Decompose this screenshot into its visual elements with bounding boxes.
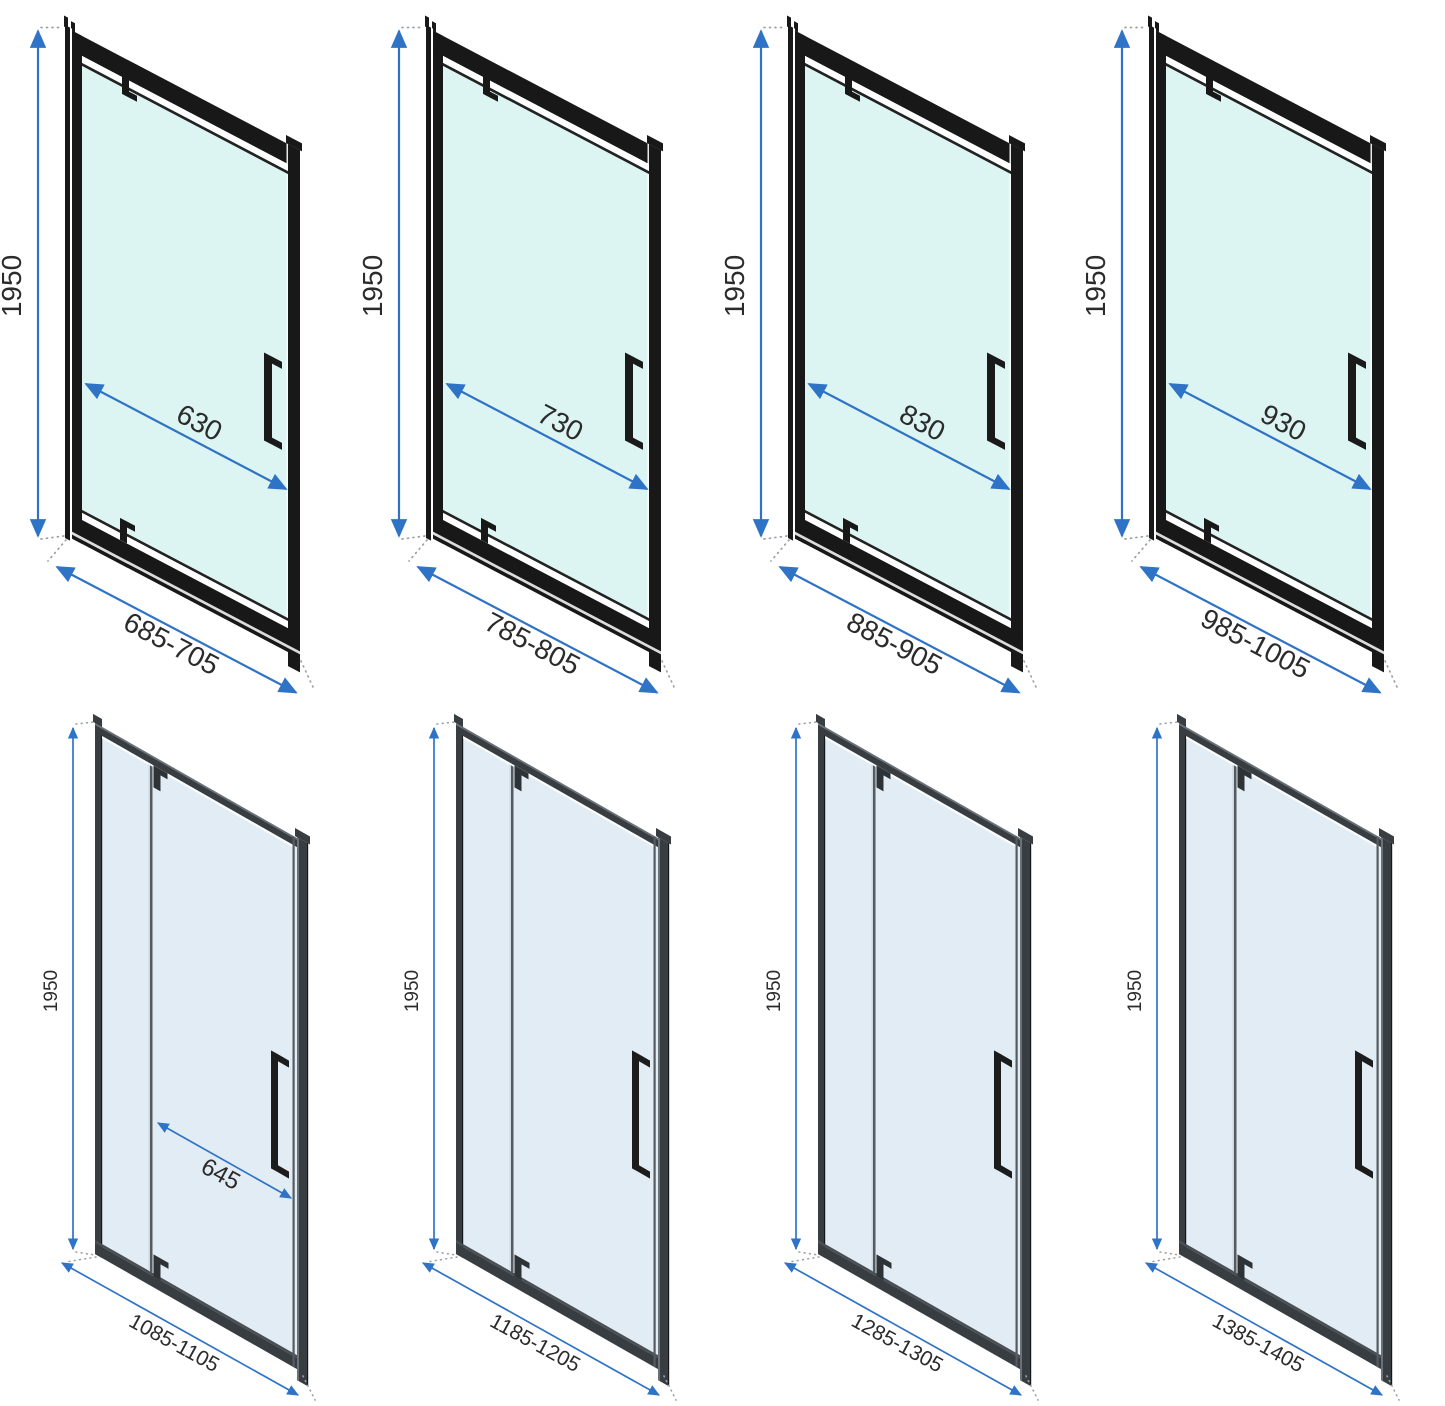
pivot-door-diagram-685-705: 1950 630 685-705 [0, 0, 361, 703]
height-dimension-label: 1950 [361, 255, 388, 317]
adjust-range-dimension-label: 1385-1405 [1208, 1309, 1307, 1377]
height-dimension-label: 1950 [1084, 255, 1111, 317]
height-dimension-label: 1950 [764, 970, 785, 1012]
door-drawing [1177, 713, 1394, 1388]
adjust-range-dimension-label: 1085-1105 [125, 1310, 223, 1377]
sliding-door-diagram-1185-1205: 1950 1185-1205 [361, 703, 722, 1406]
door-drawing [816, 713, 1033, 1388]
pivot-door-diagram-885-905: 1950 830 885-905 [723, 0, 1084, 703]
sliding-door-diagram-1385-1405: 1950 1385-1405 [1084, 703, 1445, 1406]
pivot-door-diagram-785-805: 1950 730 785-805 [361, 0, 722, 703]
sliding-door-diagram-1085-1105: 1950 645 1085-1105 [0, 703, 361, 1406]
door-drawing [64, 15, 302, 673]
height-dimension-label: 1950 [41, 970, 62, 1012]
pivot-door-diagram-985-1005: 1950 930 985-1005 [1084, 0, 1445, 703]
door-drawing [425, 15, 663, 673]
height-dimension-label: 1950 [402, 970, 423, 1012]
door-drawing [1148, 15, 1386, 673]
height-dimension-label: 1950 [1125, 970, 1146, 1012]
adjust-range-dimension-label: 685-705 [119, 606, 224, 681]
adjust-range-dimension-label: 885-905 [841, 606, 946, 681]
adjust-range-dimension-label: 985-1005 [1196, 602, 1315, 684]
adjust-range-dimension-label: 1185-1205 [486, 1310, 584, 1377]
adjust-range-dimension-label: 785-805 [480, 606, 585, 681]
sliding-door-diagram-1285-1305: 1950 1285-1305 [723, 703, 1084, 1406]
height-dimension-label: 1950 [723, 255, 750, 317]
height-dimension-label: 1950 [0, 255, 27, 317]
door-drawing [454, 713, 671, 1388]
adjust-range-dimension-label: 1285-1305 [847, 1309, 946, 1377]
diagram-sheet: 1950 630 685-705 1950 730 785-805 1950 8… [0, 0, 1445, 1406]
door-drawing [93, 713, 310, 1388]
door-drawing [787, 15, 1025, 673]
